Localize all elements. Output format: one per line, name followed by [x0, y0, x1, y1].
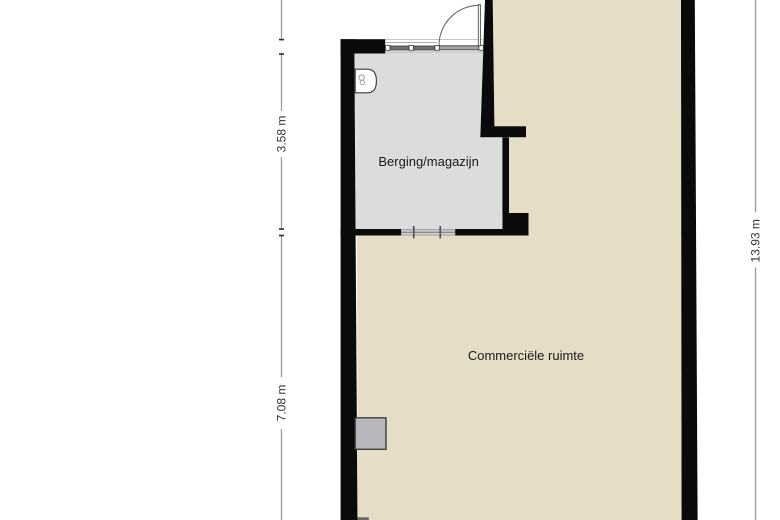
svg-text:Commerciële ruimte: Commerciële ruimte: [468, 348, 584, 363]
svg-text:Berging/magazijn: Berging/magazijn: [378, 154, 478, 169]
svg-text:7.08 m: 7.08 m: [275, 385, 289, 422]
svg-text:13.93 m: 13.93 m: [749, 219, 763, 262]
svg-text:3.58 m: 3.58 m: [275, 116, 289, 153]
